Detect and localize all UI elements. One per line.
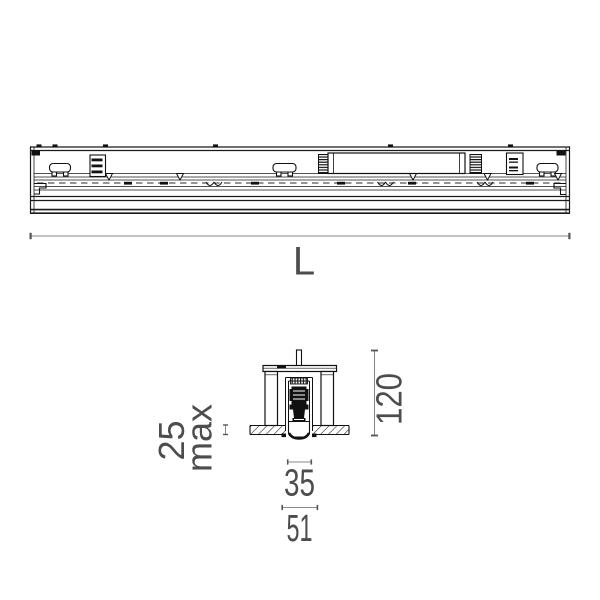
- dimension-label-cutout-width: 51: [287, 508, 313, 550]
- dimension-body-width: 35: [284, 459, 315, 504]
- dimension-tick: [568, 233, 570, 239]
- end-bracket-right: [554, 184, 566, 195]
- corner-fitting-right: [557, 151, 566, 156]
- mounting-clip: [50, 164, 71, 177]
- connector-box: [507, 153, 524, 175]
- dimension-tick: [30, 233, 32, 239]
- dimension-recess: 25 max: [151, 404, 228, 472]
- dimension-tick: [223, 424, 228, 425]
- channel-top-block: [291, 378, 308, 384]
- dimension-length: L: [30, 233, 571, 284]
- dimension-cutout-width: 51: [281, 505, 318, 550]
- top-cover-plate: [263, 366, 337, 372]
- dimension-label-height: 120: [369, 373, 410, 425]
- led-module: [290, 387, 309, 422]
- wire-clips: [206, 182, 493, 186]
- profile-inner-lines: [34, 147, 566, 213]
- driver-box: [328, 153, 465, 174]
- technical-drawing: L: [0, 0, 600, 600]
- dimension-height: 120: [369, 350, 410, 437]
- side-elevation-view: [31, 144, 570, 214]
- dimension-tick: [371, 350, 378, 352]
- dimension-tick: [371, 435, 378, 437]
- end-bracket-left: [34, 184, 46, 195]
- driver-assembly: [319, 153, 482, 174]
- dimension-label-length: L: [293, 240, 315, 284]
- dimension-tick: [281, 505, 283, 510]
- drawing-canvas: L: [0, 0, 600, 600]
- driver-end-block-right: [470, 155, 482, 174]
- driver-end-block-left: [319, 155, 329, 174]
- lens-trim: [282, 422, 317, 439]
- dimension-tick: [223, 434, 228, 435]
- dimension-tick: [317, 505, 319, 510]
- mounting-clip: [273, 164, 296, 177]
- dimension-label-body-width: 35: [284, 463, 315, 505]
- dimension-label-recess-qualifier: max: [179, 404, 220, 472]
- profile-bottom-lines: [31, 210, 570, 214]
- corner-fitting-left: [32, 151, 41, 156]
- cross-section-view: [250, 350, 349, 439]
- terminal-block: [90, 155, 106, 177]
